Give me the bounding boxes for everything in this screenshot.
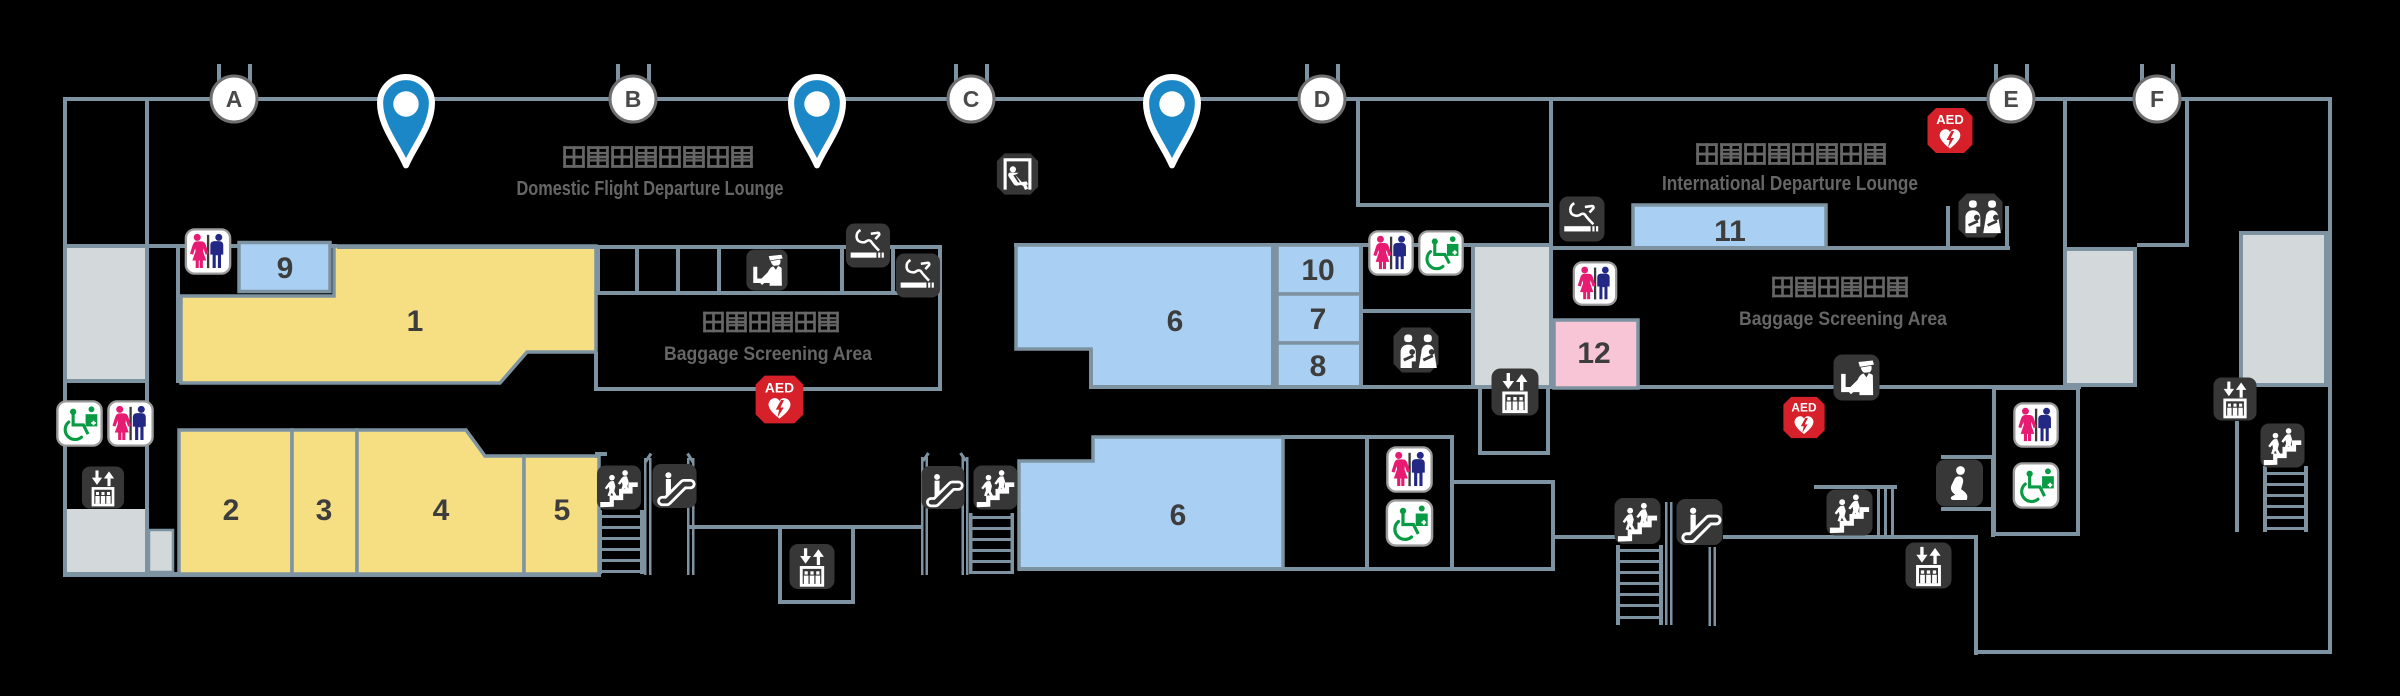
svg-text:4: 4 [433, 494, 450, 527]
svg-text:Baggage Screening Area: Baggage Screening Area [664, 344, 872, 365]
svg-text:Domestic Flight Departure Loun: Domestic Flight Departure Lounge [517, 178, 784, 200]
svg-text:3: 3 [316, 494, 333, 527]
svg-text:8: 8 [1310, 350, 1327, 383]
svg-text:7: 7 [1310, 303, 1327, 336]
svg-text:D: D [1314, 86, 1331, 112]
svg-text:A: A [226, 86, 243, 112]
svg-text:12: 12 [1577, 337, 1610, 370]
svg-text:6: 6 [1167, 305, 1184, 338]
svg-text:B: B [625, 86, 642, 112]
svg-text:10: 10 [1301, 254, 1334, 287]
svg-text:5: 5 [554, 494, 571, 527]
svg-text:9: 9 [277, 252, 294, 285]
svg-text:6: 6 [1170, 499, 1187, 532]
svg-text:11: 11 [1714, 215, 1746, 248]
svg-text:2: 2 [223, 494, 240, 527]
svg-text:International Departure Lounge: International Departure Lounge [1662, 173, 1918, 195]
svg-text:Baggage Screening Area: Baggage Screening Area [1739, 309, 1947, 330]
svg-text:C: C [963, 86, 980, 112]
svg-text:F: F [2150, 86, 2164, 112]
svg-text:1: 1 [407, 305, 424, 338]
svg-text:E: E [2003, 86, 2018, 112]
